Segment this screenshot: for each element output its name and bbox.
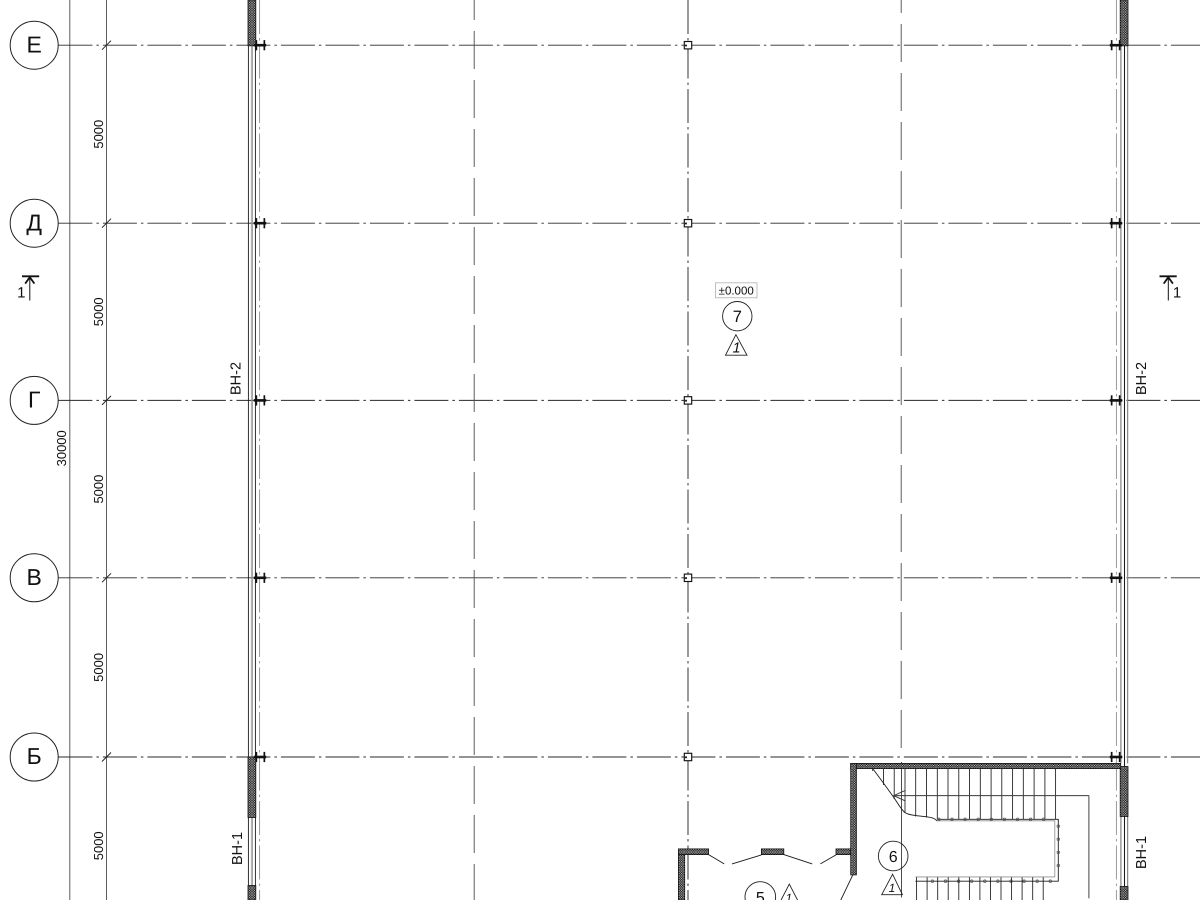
svg-text:1: 1 — [785, 891, 792, 900]
svg-text:Г: Г — [28, 387, 41, 413]
svg-text:ВН-2: ВН-2 — [229, 362, 245, 395]
svg-text:ВН-1: ВН-1 — [1134, 836, 1150, 869]
svg-text:5000: 5000 — [91, 120, 106, 149]
svg-text:5: 5 — [756, 890, 765, 900]
svg-text:1: 1 — [17, 284, 25, 301]
svg-text:5000: 5000 — [91, 475, 106, 504]
svg-text:1: 1 — [889, 881, 896, 895]
svg-text:5000: 5000 — [91, 653, 106, 682]
svg-text:Б: Б — [27, 743, 42, 769]
svg-text:30000: 30000 — [54, 430, 69, 466]
svg-text:±0.000: ±0.000 — [719, 285, 754, 297]
svg-text:ВН-1: ВН-1 — [230, 832, 246, 865]
svg-text:6: 6 — [889, 849, 898, 866]
svg-text:7: 7 — [733, 308, 742, 326]
svg-text:5000: 5000 — [91, 297, 106, 326]
svg-text:В: В — [27, 564, 42, 590]
svg-text:5000: 5000 — [91, 831, 106, 860]
svg-text:ВН-2: ВН-2 — [1134, 362, 1150, 395]
svg-text:1: 1 — [733, 341, 741, 357]
svg-text:Е: Е — [27, 31, 42, 57]
svg-text:1: 1 — [1173, 284, 1181, 301]
svg-text:Д: Д — [26, 209, 42, 235]
